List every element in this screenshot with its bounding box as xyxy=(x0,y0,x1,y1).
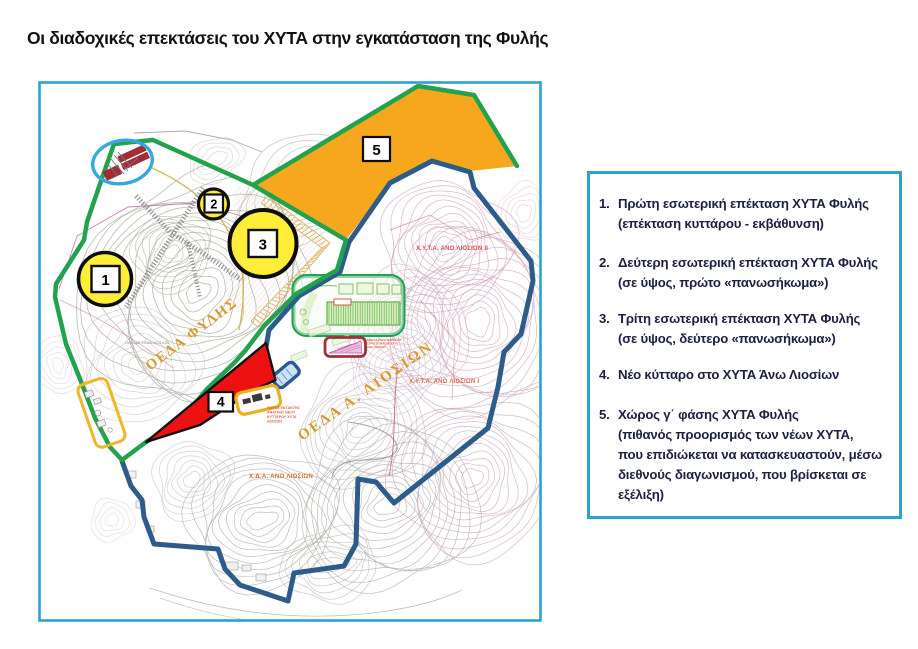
svg-text:Χ.Υ.Τ.Α. ΑΝΩ ΛΙΟΣΙΩΝ ΙΙ: Χ.Υ.Τ.Α. ΑΝΩ ΛΙΟΣΙΩΝ ΙΙ xyxy=(416,246,488,252)
svg-text:ΚΥΤΤΑΡΟΥ ΧΥΤΑ: ΚΥΤΤΑΡΟΥ ΧΥΤΑ xyxy=(267,415,297,419)
svg-text:3: 3 xyxy=(259,237,267,254)
svg-text:1: 1 xyxy=(101,272,109,289)
svg-text:ΧΩΡΟΣ ΕΚΤΑΚΤΗΣ: ΧΩΡΟΣ ΕΚΤΑΚΤΗΣ xyxy=(267,406,301,410)
svg-text:ΠΑΛΑΙΟ ΧΑΔΑ ΛΙΟΣΙΩΝ: ΠΑΛΑΙΟ ΧΑΔΑ ΛΙΟΣΙΩΝ xyxy=(125,340,169,345)
svg-text:2: 2 xyxy=(210,198,217,212)
svg-text:4: 4 xyxy=(217,394,225,410)
svg-text:ΑΝΩ ΛΙΟΣΙΩΝ: ΑΝΩ ΛΙΟΣΙΩΝ xyxy=(367,345,386,349)
svg-text:5: 5 xyxy=(372,142,380,159)
svg-text:ΛΙΟΣΙΩΝ: ΛΙΟΣΙΩΝ xyxy=(267,420,282,424)
svg-text:Χ.Υ.Τ.Α. ΑΝΩ ΛΙΟΣΙΩΝ Ι: Χ.Υ.Τ.Α. ΑΝΩ ΛΙΟΣΙΩΝ Ι xyxy=(409,379,479,385)
svg-text:Χ.Δ.Α. ΑΝΩ ΛΙΟΣΙΩΝ: Χ.Δ.Α. ΑΝΩ ΛΙΟΣΙΩΝ xyxy=(249,474,313,480)
svg-text:ΑΝΑΓΚΗΣ ΝΕΟΥ: ΑΝΑΓΚΗΣ ΝΕΟΥ xyxy=(267,411,296,415)
